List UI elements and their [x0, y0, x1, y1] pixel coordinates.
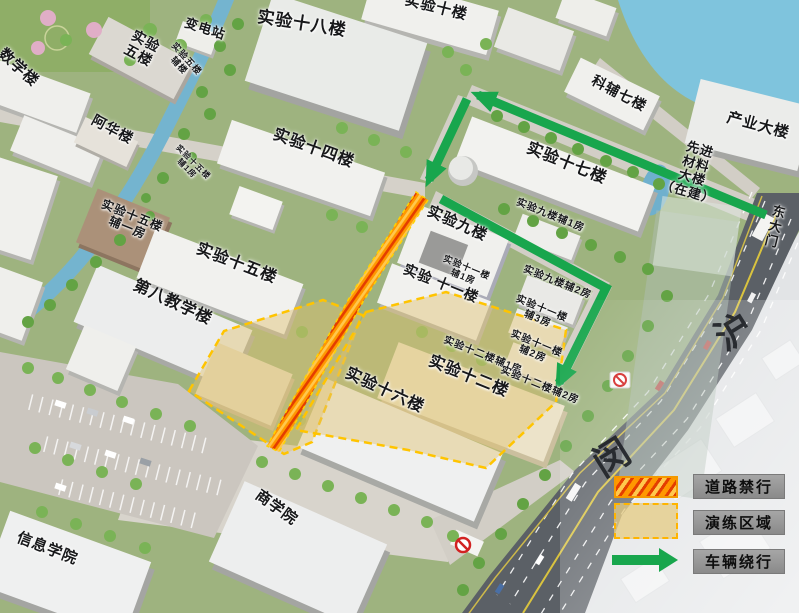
no-entry-sign-south — [456, 538, 470, 552]
campus-map-canvas — [0, 0, 799, 613]
campus-drill-map: 数学楼 实验 五楼 变电站 实验十八楼 实验十楼 实验五楼 辅楼 阿华楼 实验十… — [0, 0, 799, 613]
legend-road-closed-label: 道路禁行 — [693, 474, 785, 499]
legend-detour-arrowhead-icon — [659, 548, 678, 572]
legend-drill-area-swatch — [614, 503, 678, 539]
legend-drill-area-label: 演练区域 — [693, 510, 785, 535]
legend-road-closed-swatch — [614, 476, 678, 498]
legend-detour-label: 车辆绕行 — [693, 549, 785, 574]
legend-detour-arrow-icon — [612, 555, 659, 565]
